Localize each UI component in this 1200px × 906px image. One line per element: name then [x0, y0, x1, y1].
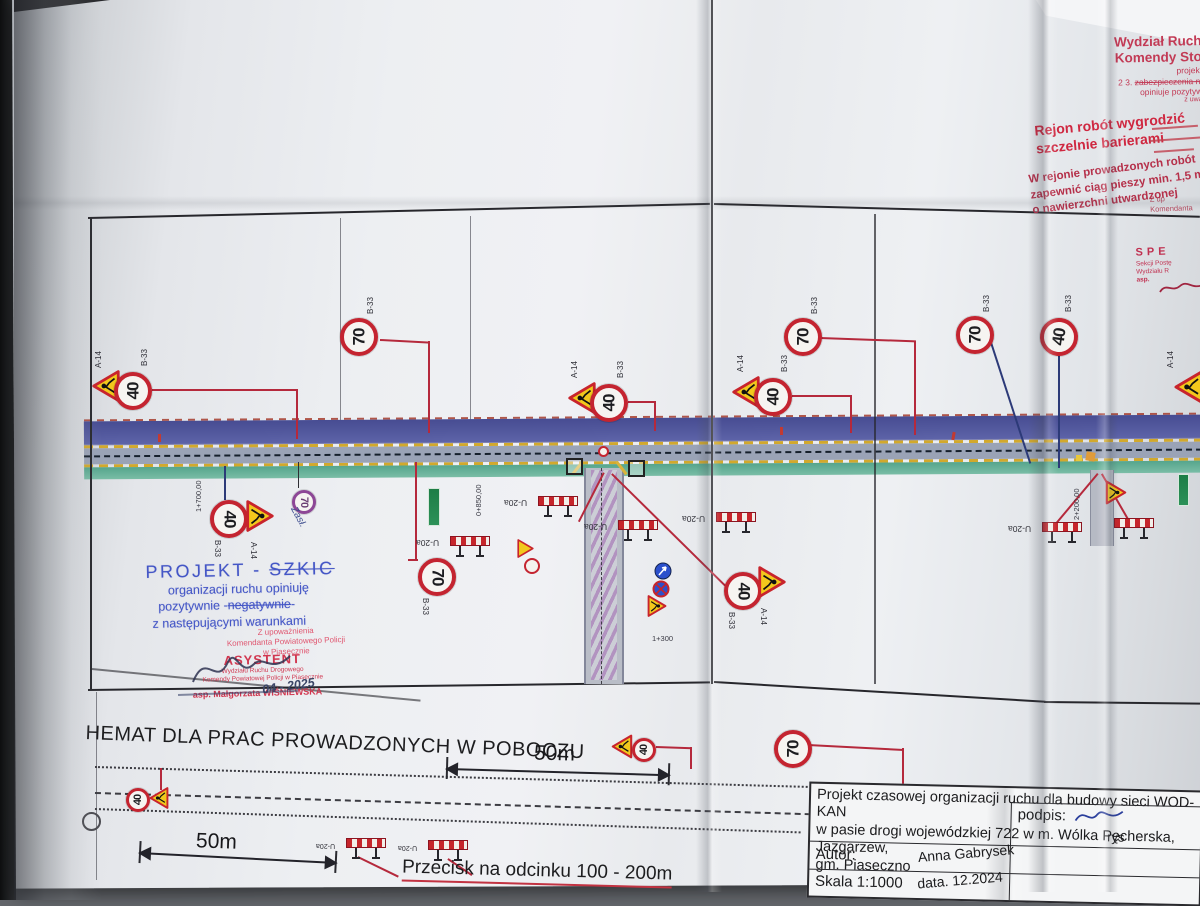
barrier-board — [450, 536, 490, 546]
speed-value: 40 — [733, 583, 753, 600]
speed-value: 40 — [123, 383, 143, 400]
barrier-u20a-4 — [716, 512, 756, 534]
barrier-label-8: U-20a — [398, 844, 417, 851]
mini-warning-sign — [517, 539, 534, 558]
scheme-leader-upper-v — [690, 747, 692, 769]
speed-sign-40-2: 40 — [590, 384, 628, 422]
mini-circle-sign — [524, 558, 540, 574]
hydrant-marker — [598, 446, 609, 457]
barrier-u20a-8 — [428, 840, 468, 862]
speed-sign-70-3: 70 — [956, 316, 994, 354]
scheme-sign-70: 70 — [774, 730, 812, 768]
barrier-board — [538, 496, 578, 506]
frame-mid-right — [874, 214, 876, 684]
signature-asystent — [188, 642, 298, 694]
pole-tick-1 — [158, 434, 161, 442]
speed-sign-40-3: 40 — [754, 378, 792, 416]
distance-label-upper: 50m — [534, 741, 575, 766]
sign-label-a14-4: A-14 — [1166, 351, 1175, 368]
leader-40-center-h — [628, 401, 656, 403]
roadworks-sign-a14-4 — [1174, 370, 1200, 404]
speed-sign-40-6: 40 — [724, 572, 762, 610]
speed-value: 70 — [349, 329, 369, 346]
pole-tick-2 — [780, 427, 783, 435]
barrier-u20a-2 — [538, 496, 578, 518]
utility-box-1 — [566, 458, 583, 475]
barrier-board — [618, 520, 658, 530]
sign-label-b33-9: B-33 — [421, 598, 430, 615]
signature-author — [1073, 805, 1125, 828]
stamp-line: Wydziału R — [1136, 267, 1172, 276]
sign-label-b33-4: B-33 — [780, 355, 789, 372]
sign-label-a14-5: A-14 — [249, 542, 258, 559]
barrier-u20a-5 — [1042, 522, 1082, 544]
speed-sign-40-5: 40 — [210, 500, 248, 538]
sheet-divider-center — [711, 0, 713, 684]
speed-value: 70 — [427, 569, 447, 586]
barrier-label-1: U-20a — [416, 538, 439, 548]
junction-marker-yellow — [1076, 455, 1082, 461]
barrier-u20a-3 — [618, 520, 658, 542]
sign-label-b33-6: B-33 — [982, 295, 991, 312]
sign-label-b33-1: B-33 — [140, 349, 149, 366]
edge-marker — [82, 812, 101, 831]
signature-label: podpis: — [1017, 806, 1066, 824]
speed-value: 40 — [638, 745, 650, 755]
leader-40-topleft-h — [152, 389, 298, 391]
sign-label-b33-3: B-33 — [616, 361, 625, 378]
signature-cell: podpis: rys — [1009, 802, 1200, 904]
bottom-left-margin-line — [96, 692, 97, 880]
barrier-label-4: U-20a — [682, 514, 705, 524]
leader-40-below-left — [224, 466, 226, 500]
barrier-board — [346, 838, 386, 848]
sign-label-b33-5: B-33 — [810, 297, 819, 314]
stamp-projekt-szkic: PROJEKT - SZKIC organizacji ruchu opiniu… — [145, 558, 336, 632]
leader-40-fold-v — [1058, 350, 1060, 468]
chainage-label-2: 0+850,00 — [474, 485, 483, 517]
barrier-label-3: U-20a — [584, 522, 607, 532]
author-value: Anna Gabrysek — [917, 841, 1014, 865]
sign-label-b33-10: B-33 — [727, 612, 736, 629]
scheme-sign-40-upper: 40 — [632, 738, 656, 762]
stamp-line: Komendy Sto — [1092, 49, 1200, 67]
barrier-board — [428, 840, 468, 850]
roadworks-sign-a14-7 — [647, 595, 667, 617]
author-label: Autor: — [816, 846, 856, 864]
scheme-sign-a14-left — [149, 787, 169, 809]
barrier-board — [716, 512, 756, 522]
speed-sign-40-1: 40 — [114, 372, 152, 410]
barrier-board — [1042, 522, 1082, 532]
town-sign-e17a-left — [428, 488, 440, 526]
barrier-u20a-1 — [450, 536, 490, 558]
frame-left — [90, 217, 92, 689]
barrier-label-2: U-20a — [504, 498, 527, 508]
roadworks-sign-a14-6 — [758, 566, 786, 598]
stamp-authorization-small: Z up Komendanta — [1150, 193, 1193, 214]
scale-label: Skala 1:1000 — [815, 873, 903, 892]
town-sign-e17a-right — [1178, 474, 1189, 506]
sign-label-a14-1: A-14 — [94, 351, 103, 368]
chainage-label-1: 1+700,00 — [194, 481, 203, 513]
speed-sign-70-4: 70 — [418, 558, 456, 596]
utility-box-2 — [628, 460, 645, 477]
chainage-label-4: 1+300 — [652, 634, 673, 643]
stamp-line: Komendanta — [1150, 203, 1193, 214]
leader-covered-sign — [298, 462, 299, 488]
keep-right-sign-c9 — [654, 562, 672, 580]
stamp-line: Wydział Ruch — [1091, 33, 1200, 51]
barrier-label-7: U-20a — [316, 842, 335, 849]
junction-marker-orange — [1085, 451, 1095, 461]
speed-value: 70 — [298, 497, 310, 507]
stamp-police-hq: Wydział Ruch Komendy Sto projekt 2 3. za… — [1091, 33, 1200, 106]
side-road-centerline — [601, 468, 602, 684]
speed-value: 70 — [965, 327, 985, 344]
photo-of-traffic-plan: { "colors":{"paper":"#edeff2","surface":… — [0, 0, 1200, 900]
leader-40-topleft-v — [296, 389, 298, 439]
leader-40-right-v — [850, 395, 852, 433]
sign-label-a14-2: A-14 — [570, 361, 579, 378]
survey-hairline-1 — [340, 218, 341, 424]
speed-value: 40 — [219, 511, 239, 528]
speed-value: 40 — [599, 395, 619, 412]
speed-sign-70-1: 70 — [340, 318, 378, 356]
title-block: Projekt czasowej organizacji ruchu dla b… — [807, 782, 1200, 906]
barrier-board — [1114, 518, 1154, 528]
speed-value: 40 — [763, 389, 783, 406]
leader-40-right-h — [792, 395, 852, 397]
speed-value: 40 — [132, 795, 144, 805]
sign-label-b33-2: B-33 — [366, 297, 375, 314]
barrier-u20a-6 — [1114, 518, 1154, 540]
rys-label: rys — [1107, 829, 1125, 844]
sign-label-a14-6: A-14 — [759, 608, 768, 625]
barrier-label-5: U-20a — [1008, 524, 1031, 534]
chainage-label-3: 2+200,00 — [1072, 489, 1081, 521]
roadworks-sign-a14-8 — [1106, 481, 1127, 505]
sign-label-b33-8: B-33 — [213, 540, 222, 557]
stamp-line: SPE — [1135, 245, 1171, 260]
signature-spe — [1158, 280, 1200, 296]
sign-label-a14-3: A-14 — [736, 355, 745, 372]
speed-value: 40 — [1048, 327, 1070, 347]
stamp-spe: SPE Sekcji Postę Wydziału R asp. — [1135, 245, 1172, 284]
leader-70-left-v — [428, 341, 430, 433]
distance-label-bottom: 50m — [196, 829, 238, 854]
speed-sign-70-2: 70 — [784, 318, 822, 356]
workzone-hatch — [591, 470, 617, 680]
scheme-sign-a14-upper — [612, 735, 633, 759]
roadworks-sign-a14-5 — [246, 500, 274, 532]
barrier-u20a-7 — [346, 838, 386, 860]
leader-40-center-v — [654, 401, 656, 431]
scheme-sign-40-left: 40 — [126, 788, 150, 812]
speed-value: 70 — [793, 329, 813, 346]
sign-label-b33-7: B-33 — [1064, 295, 1073, 312]
leader-70-right-v — [914, 341, 916, 435]
leader-70-below-stub — [408, 559, 418, 561]
survey-hairline-2 — [470, 216, 471, 424]
speed-value: 70 — [783, 741, 803, 758]
road-centerline — [84, 449, 1200, 458]
